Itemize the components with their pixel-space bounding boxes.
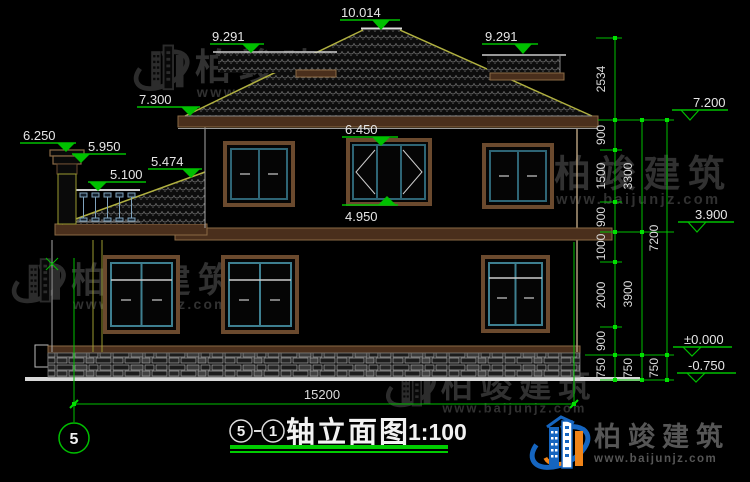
mark-label: 4.950 xyxy=(345,209,378,224)
window-1f-right xyxy=(483,257,548,331)
right-dim-text-inner: 2534 900 1500 900 1000 2000 900 750 xyxy=(594,65,608,378)
brand-url: www.baijunjz.com xyxy=(593,453,717,465)
brand-logo: 柏竣建筑 www.baijunjz.com xyxy=(526,417,730,476)
brand-name: 柏竣建筑 xyxy=(594,421,730,452)
window-1f-left xyxy=(105,257,178,332)
chimney xyxy=(50,150,84,224)
mark-7300: 7.300 xyxy=(137,92,200,116)
window-1f-center xyxy=(223,257,297,332)
mark-5100: 5.100 xyxy=(88,167,146,191)
mark-label: 6.450 xyxy=(345,122,378,137)
dim-15200: 15200 xyxy=(304,387,340,402)
title-scale: 1:100 xyxy=(408,419,467,445)
baijun-logo-icon xyxy=(526,417,595,476)
mark-label: 3.900 xyxy=(695,207,728,222)
dim-750b: 750 xyxy=(621,358,635,378)
axis-bubble-label: 5 xyxy=(70,431,79,448)
dim-2534: 2534 xyxy=(594,65,608,92)
dim-900c: 900 xyxy=(594,331,608,351)
title-text: 轴立面图 xyxy=(286,415,410,449)
dim-2000: 2000 xyxy=(594,281,608,308)
mark-label: ±0.000 xyxy=(684,332,724,347)
mark-3900-level: 3.900 xyxy=(678,207,734,232)
mark-label: 9.291 xyxy=(212,29,245,44)
drawing-svg: 柏竣建筑 www.baijunjz.com xyxy=(0,0,750,482)
mark-label: -0.750 xyxy=(688,358,725,373)
mark-label: 9.291 xyxy=(485,29,518,44)
left-footing-step xyxy=(35,345,48,367)
mark-label: 10.014 xyxy=(341,5,381,20)
stone-base xyxy=(48,346,580,377)
right-dormer-roof xyxy=(482,55,566,80)
mark-label: 7.300 xyxy=(139,92,172,107)
mark-7200-level: 7.200 xyxy=(672,95,728,120)
window-2f-right xyxy=(484,145,552,207)
title-block: 5 1 轴立面图 1:100 xyxy=(230,415,467,453)
floor-band xyxy=(175,228,612,240)
dim-1000: 1000 xyxy=(594,233,608,260)
mark-9291-right: 9.291 xyxy=(482,29,538,54)
dim-900a: 900 xyxy=(594,125,608,145)
dim-750c: 750 xyxy=(647,358,661,378)
mark-label: 7.200 xyxy=(693,95,726,110)
main-eave xyxy=(178,116,598,129)
cad-elevation-drawing: 柏竣建筑 www.baijunjz.com xyxy=(0,0,750,482)
mark-label: 5.100 xyxy=(110,167,143,182)
ground-line xyxy=(25,377,640,381)
mark-minus-750-level: -0.750 xyxy=(677,358,736,382)
mark-zero-level: ±0.000 xyxy=(673,332,732,356)
title-underline-thin xyxy=(230,451,448,453)
dim-3300: 3300 xyxy=(621,162,635,189)
right-dim-nodes xyxy=(613,36,669,382)
title-axis-to: 1 xyxy=(269,423,277,440)
window-2f-center xyxy=(348,140,430,204)
title-underline-thick xyxy=(230,445,448,449)
mark-6250: 6.250 xyxy=(20,128,76,152)
dim-900b: 900 xyxy=(594,207,608,227)
dim-1500: 1500 xyxy=(594,162,608,189)
title-axis-from: 5 xyxy=(237,423,245,440)
dim-7200: 7200 xyxy=(647,224,661,251)
mark-5474: 5.474 xyxy=(148,154,202,178)
mark-10014: 10.014 xyxy=(340,5,400,30)
mark-label: 5.474 xyxy=(151,154,184,169)
mark-label: 5.950 xyxy=(88,139,121,154)
dim-3900: 3900 xyxy=(621,280,635,307)
porch-eave-band xyxy=(55,224,207,235)
dim-750a: 750 xyxy=(594,358,608,378)
window-2f-left xyxy=(225,143,293,205)
building-elevation xyxy=(25,29,640,382)
mark-label: 6.250 xyxy=(23,128,56,143)
